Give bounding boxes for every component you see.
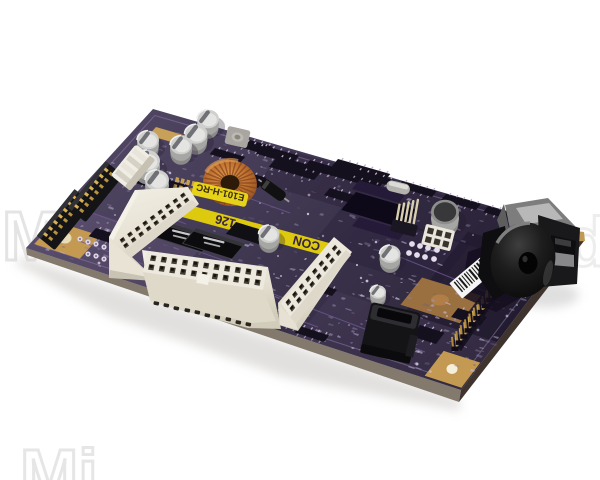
svg-text:Mi: Mi — [20, 435, 98, 480]
